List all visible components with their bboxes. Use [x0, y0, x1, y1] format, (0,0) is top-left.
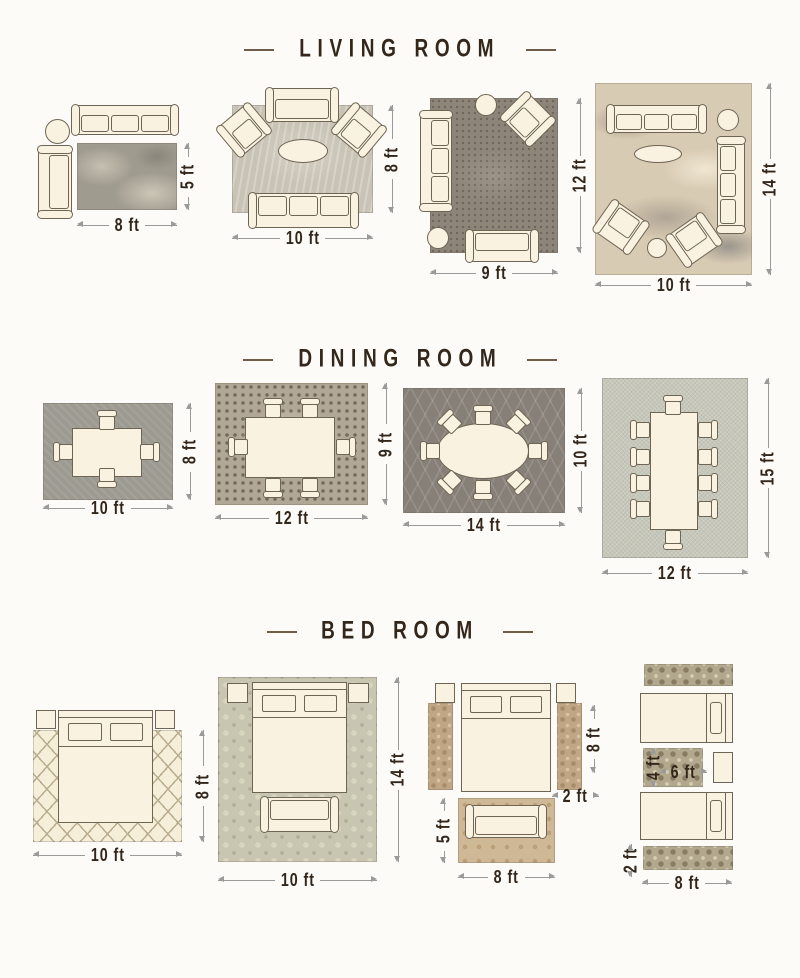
dimension-line — [386, 464, 387, 505]
chair-back — [349, 437, 356, 457]
dimension-line — [43, 508, 85, 509]
nightstand — [435, 683, 455, 703]
height-dimension: 15 ft — [760, 378, 776, 558]
seat-cushion — [671, 114, 697, 130]
sofa-arm — [698, 104, 707, 134]
living-room-layout-8x5: 8 ft 5 ft — [28, 83, 208, 243]
seat-cushion — [81, 115, 109, 132]
pillow — [710, 702, 722, 735]
chair-seat — [99, 416, 115, 430]
header-dash — [267, 631, 297, 633]
dimension-line — [580, 98, 581, 156]
seat-cushion — [475, 233, 529, 251]
chair-seat — [426, 443, 440, 459]
loveseat — [267, 88, 337, 122]
width-label: 14 ft — [467, 516, 501, 534]
height-label: 14 ft — [389, 752, 407, 786]
sofa-arm — [606, 104, 615, 134]
runner-width-dimension: 2 ft — [552, 788, 594, 804]
pillow-row — [253, 690, 346, 718]
runner-height-label: 8 ft — [585, 726, 603, 751]
dimension-line — [631, 872, 632, 877]
height-label: 5 ft — [179, 164, 197, 189]
runner-height-label: 2 ft — [622, 848, 640, 873]
width-label: 10 ft — [91, 499, 125, 517]
dimension-line — [581, 471, 582, 514]
runner-rug — [644, 664, 733, 686]
runner-rug — [643, 846, 733, 870]
dining-chair — [53, 442, 73, 462]
section-header-living-room: LIVING ROOM — [0, 38, 800, 61]
width-dimension: 10 ft — [232, 230, 373, 246]
coffee-table — [278, 139, 328, 163]
living-room-layout-10x8: 10 ft 8 ft — [222, 83, 402, 253]
sofa-arm — [37, 210, 73, 219]
seat-cushion — [275, 99, 329, 119]
width-dimension: 8 ft — [77, 217, 177, 233]
sofa-arm — [260, 796, 269, 833]
dining-chair — [663, 530, 683, 550]
chair-seat — [665, 530, 681, 544]
sofa — [608, 105, 705, 133]
pillow — [510, 696, 542, 713]
bed — [252, 682, 347, 793]
header-dash — [526, 49, 556, 51]
dimension-line — [654, 782, 655, 787]
width-label: 10 ft — [280, 871, 314, 889]
dimension-line — [594, 759, 595, 773]
chair-back — [300, 491, 320, 498]
sofa-arm — [330, 87, 339, 123]
header-dash — [503, 631, 533, 633]
living-room-layout-10x14: 10 ft 14 ft — [590, 70, 790, 305]
dimension-line — [232, 238, 280, 239]
width-dimension: 12 ft — [215, 510, 368, 526]
seat-cushion — [431, 148, 449, 174]
chair-back — [541, 441, 548, 461]
headboard — [462, 684, 550, 691]
side-table — [647, 238, 667, 258]
dimension-line — [660, 772, 665, 773]
section-header-bed-room: BED ROOM — [0, 620, 800, 643]
height-dimension: 8 ft — [195, 730, 211, 842]
dimension-line — [768, 378, 769, 448]
dimension-line — [131, 508, 173, 509]
chair-seat — [475, 480, 491, 494]
foot-rug-width-dimension: 8 ft — [458, 869, 555, 885]
sheet-line — [706, 694, 707, 742]
chair-back — [663, 543, 683, 550]
seat-cushion — [289, 196, 318, 216]
width-label: 12 ft — [274, 509, 308, 527]
section-header-dining-room: DINING ROOM — [0, 348, 800, 371]
dimension-line — [705, 883, 732, 884]
nightstand — [155, 710, 175, 729]
dining-room-layout-14x10: 14 ft 10 ft — [398, 380, 593, 535]
dining-table — [650, 412, 698, 530]
height-label: 8 ft — [383, 146, 401, 171]
living-room-layout-9x12: 9 ft 12 ft — [415, 83, 595, 283]
sofa-arm — [265, 87, 274, 123]
pillow-row — [462, 691, 550, 719]
rug-size-guide: LIVING ROOM DINING ROOM BED ROOM 8 ft 5 — [0, 0, 800, 978]
section-title: BED ROOM — [321, 617, 479, 646]
dimension-line — [386, 383, 387, 424]
foot-rug-height-dimension: 5 ft — [436, 798, 452, 863]
height-label: 8 ft — [194, 773, 212, 798]
dining-chair — [630, 420, 650, 440]
dining-chair — [97, 468, 117, 488]
dimension-line — [392, 179, 393, 213]
side-table — [717, 109, 739, 131]
side-table — [475, 94, 497, 116]
headboard — [59, 711, 152, 718]
chair-back — [97, 481, 117, 488]
rug — [77, 143, 177, 210]
seat-cushion — [258, 196, 287, 216]
height-dimension: 14 ft — [762, 83, 778, 275]
side-table — [45, 119, 70, 144]
pillow — [710, 800, 722, 831]
dimension-line — [581, 388, 582, 431]
seat-cushion — [720, 173, 736, 198]
dining-chair — [228, 437, 248, 457]
dining-chair — [140, 442, 160, 462]
width-dimension: 10 ft — [218, 872, 377, 888]
sofa-arm — [419, 203, 453, 212]
dimension-line — [444, 851, 445, 864]
width-dimension: 14 ft — [403, 517, 565, 533]
chair-seat — [636, 449, 650, 465]
dining-chair — [663, 395, 683, 415]
sofa — [717, 138, 745, 232]
width-dimension: 12 ft — [602, 565, 748, 581]
section-title: DINING ROOM — [298, 345, 502, 374]
chair-seat — [698, 449, 712, 465]
seat-cushion — [49, 155, 69, 209]
sofa-arm — [530, 229, 539, 263]
dining-chair — [698, 447, 718, 467]
dimension-line — [698, 573, 748, 574]
foot-rug-height-label: 5 ft — [435, 818, 453, 843]
dimension-line — [525, 877, 555, 878]
dimension-line — [320, 880, 377, 881]
dimension-line — [642, 883, 669, 884]
seat-cushion — [644, 114, 670, 130]
seat-cushion — [616, 114, 642, 130]
pillow — [304, 695, 337, 712]
dimension-line — [398, 677, 399, 750]
chair-back — [473, 493, 493, 500]
dining-room-layout-12x9: 12 ft 9 ft — [210, 378, 400, 528]
width-dimension: 9 ft — [430, 265, 558, 281]
dimension-line — [512, 273, 558, 274]
sofa-arm — [538, 804, 547, 839]
height-label: 14 ft — [761, 162, 779, 196]
sofa — [250, 193, 357, 228]
pillow — [262, 695, 295, 712]
width-dimension: 10 ft — [33, 847, 182, 863]
dimension-line — [594, 705, 595, 719]
dimension-line — [507, 525, 565, 526]
chair-seat — [140, 444, 154, 460]
nightstand — [348, 683, 369, 703]
runner-width-dimension: 8 ft — [642, 875, 732, 891]
height-dimension: 8 ft — [182, 403, 198, 500]
dimension-line — [595, 285, 651, 286]
dimension-line — [602, 573, 652, 574]
height-dimension: 8 ft — [384, 105, 400, 213]
sofa-arm — [170, 104, 179, 136]
pillow — [470, 696, 502, 713]
height-dimension: 14 ft — [390, 677, 406, 862]
dining-chair — [300, 398, 320, 418]
side-table — [427, 227, 449, 249]
sofa-arm — [465, 804, 474, 839]
dimension-line — [580, 196, 581, 254]
chair-back — [263, 491, 283, 498]
sofa — [420, 112, 452, 210]
dimension-line — [392, 105, 393, 139]
runner-width-label: 2 ft — [563, 787, 588, 805]
sofa-arm — [465, 229, 474, 263]
width-label: 12 ft — [658, 564, 692, 582]
chair-seat — [698, 422, 712, 438]
bed-room-layout-10x14: 10 ft 14 ft — [214, 670, 409, 885]
bed — [461, 683, 551, 792]
height-dimension: 5 ft — [180, 143, 196, 210]
width-label: 9 ft — [481, 264, 506, 282]
seat-cushion — [475, 816, 537, 835]
sofa — [73, 105, 177, 135]
dining-chair — [263, 398, 283, 418]
dimension-line — [654, 748, 655, 753]
dining-room-layout-10x8: 10 ft 8 ft — [30, 395, 205, 525]
seat-cushion — [111, 115, 139, 132]
sofa-arm — [71, 104, 80, 136]
nightstand — [227, 683, 248, 703]
chair-seat — [698, 501, 712, 517]
runner-height-dimension: 8 ft — [586, 705, 602, 773]
dining-chair — [630, 447, 650, 467]
dimension-line — [403, 525, 461, 526]
height-label: 12 ft — [571, 158, 589, 192]
dimension-line — [770, 83, 771, 159]
dimension-line — [190, 472, 191, 501]
dimension-line — [145, 225, 177, 226]
chair-seat — [636, 501, 650, 517]
dimension-line — [218, 880, 275, 881]
width-label: 10 ft — [285, 229, 319, 247]
dimension-line — [33, 855, 85, 856]
dimension-line — [552, 796, 557, 797]
pillow — [68, 723, 101, 740]
chair-seat — [302, 478, 318, 492]
bed-room-layout-twin-beds: 4 ft 6 ft 2 ft 8 ft — [622, 658, 792, 898]
dimension-line — [188, 197, 189, 211]
width-label: 10 ft — [90, 846, 124, 864]
chair-seat — [265, 404, 281, 418]
dimension-line — [325, 238, 373, 239]
sofa-arm — [419, 110, 453, 119]
dining-chair — [473, 480, 493, 500]
dining-chair — [336, 437, 356, 457]
dimension-line — [458, 877, 488, 878]
bench — [262, 797, 337, 832]
nightstand — [36, 710, 56, 729]
foot-rug-width-label: 8 ft — [494, 868, 519, 886]
dining-chair — [528, 441, 548, 461]
middle-rug-width-label: 6 ft — [671, 763, 696, 781]
width-dimension: 10 ft — [43, 500, 173, 516]
width-label: 10 ft — [656, 276, 690, 294]
coffee-table — [634, 145, 682, 163]
bed-room-layout-10x8: 10 ft 8 ft — [28, 700, 213, 865]
dining-chair — [698, 499, 718, 519]
runner-height-dimension: 2 ft — [623, 844, 639, 872]
dining-chair — [97, 410, 117, 430]
chair-seat — [99, 468, 115, 482]
runner-width-label: 8 ft — [674, 874, 699, 892]
chair-seat — [698, 475, 712, 491]
dimension-line — [594, 796, 599, 797]
seat-cushion — [431, 120, 449, 146]
height-dimension: 9 ft — [378, 383, 394, 505]
dimension-line — [188, 143, 189, 157]
section-title: LIVING ROOM — [300, 35, 501, 64]
dimension-line — [314, 518, 368, 519]
pillow — [110, 723, 143, 740]
chaise — [38, 147, 72, 217]
dining-room-layout-12x15: 12 ft 15 ft — [596, 372, 791, 587]
headboard — [725, 694, 726, 742]
dining-chair — [630, 499, 650, 519]
header-dash — [527, 359, 557, 361]
seat-cushion — [431, 176, 449, 202]
sheet-line — [706, 793, 707, 839]
dimension-line — [203, 730, 204, 766]
dimension-line — [702, 772, 707, 773]
chair-seat — [636, 475, 650, 491]
chair-seat — [302, 404, 318, 418]
runner-rug — [557, 703, 582, 790]
dimension-line — [696, 285, 752, 286]
chair-seat — [265, 478, 281, 492]
dimension-line — [190, 403, 191, 432]
loveseat — [467, 805, 545, 838]
width-label: 8 ft — [114, 216, 139, 234]
nightstand — [556, 683, 576, 703]
dining-chair — [473, 405, 493, 425]
height-label: 10 ft — [572, 433, 590, 467]
chair-seat — [528, 443, 542, 459]
header-dash — [243, 359, 273, 361]
pillow-row — [59, 718, 152, 747]
twin-bed — [640, 693, 733, 743]
chair-seat — [636, 422, 650, 438]
dining-chair — [300, 478, 320, 498]
sofa-arm — [716, 225, 746, 234]
dimension-line — [770, 199, 771, 275]
headboard — [253, 683, 346, 690]
chair-seat — [234, 439, 248, 455]
sofa-arm — [248, 192, 257, 229]
seat-cushion — [720, 199, 736, 224]
headboard — [725, 793, 726, 839]
dimension-line — [215, 518, 269, 519]
seat-cushion — [270, 800, 329, 820]
twin-bed — [640, 792, 733, 840]
chair-back — [711, 473, 718, 493]
height-label: 8 ft — [181, 439, 199, 464]
dimension-line — [768, 488, 769, 558]
dimension-line — [130, 855, 182, 856]
sofa-arm — [37, 145, 73, 154]
bed — [58, 710, 153, 823]
chair-seat — [59, 444, 73, 460]
header-dash — [244, 49, 274, 51]
seat-cushion — [141, 115, 169, 132]
height-dimension: 10 ft — [573, 388, 589, 513]
chair-back — [711, 499, 718, 519]
loveseat — [467, 230, 537, 262]
chair-back — [711, 447, 718, 467]
dimension-line — [430, 273, 476, 274]
middle-rug-width-dimension: 6 ft — [660, 764, 703, 780]
dimension-line — [444, 798, 445, 811]
dining-chair — [420, 441, 440, 461]
dining-chair — [263, 478, 283, 498]
dining-chair — [698, 420, 718, 440]
height-label: 15 ft — [759, 451, 777, 485]
chair-seat — [665, 401, 681, 415]
dimension-line — [203, 806, 204, 842]
width-dimension: 10 ft — [595, 277, 752, 293]
dining-chair — [698, 473, 718, 493]
height-dimension: 12 ft — [572, 98, 588, 253]
seat-cushion — [320, 196, 349, 216]
nightstand — [713, 752, 733, 783]
chair-back — [711, 420, 718, 440]
bed-room-layout-runners: 8 ft 2 ft 5 ft 8 ft — [424, 676, 614, 891]
seat-cushion — [720, 146, 736, 171]
dimension-line — [77, 225, 109, 226]
runner-rug — [428, 703, 453, 790]
chair-back — [153, 442, 160, 462]
chair-seat — [336, 439, 350, 455]
height-label: 9 ft — [377, 431, 395, 456]
chair-seat — [475, 411, 491, 425]
sofa-arm — [330, 796, 339, 833]
dining-table — [245, 417, 335, 478]
sofa-arm — [716, 136, 746, 145]
dimension-line — [398, 790, 399, 863]
sofa-arm — [350, 192, 359, 229]
dining-chair — [630, 473, 650, 493]
